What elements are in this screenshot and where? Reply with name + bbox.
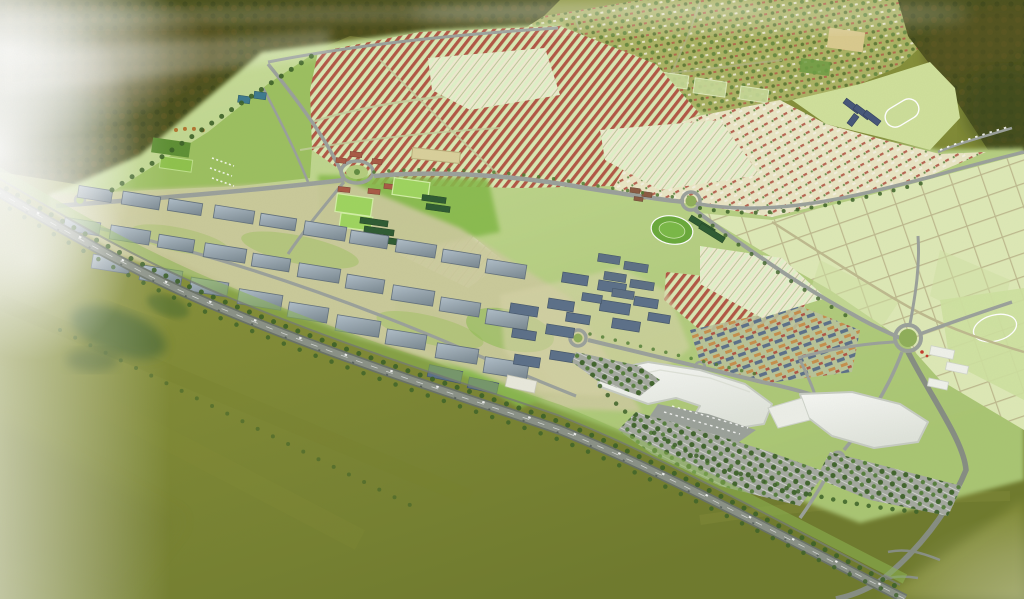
aerial-masterplan-render — [0, 0, 1024, 599]
scene-canvas — [0, 0, 1024, 599]
grain-overlay — [0, 0, 1024, 599]
